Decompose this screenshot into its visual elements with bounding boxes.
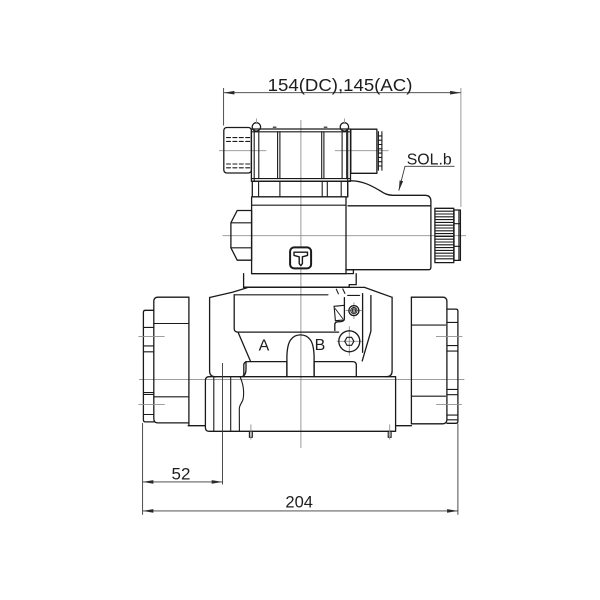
svg-text:204: 204 (285, 494, 313, 512)
svg-text:52: 52 (172, 465, 191, 484)
svg-text:154(DC),145(AC): 154(DC),145(AC) (268, 75, 413, 95)
svg-text:SOL.b: SOL.b (407, 151, 452, 168)
svg-text:B: B (315, 337, 326, 354)
svg-text:A: A (259, 338, 270, 355)
